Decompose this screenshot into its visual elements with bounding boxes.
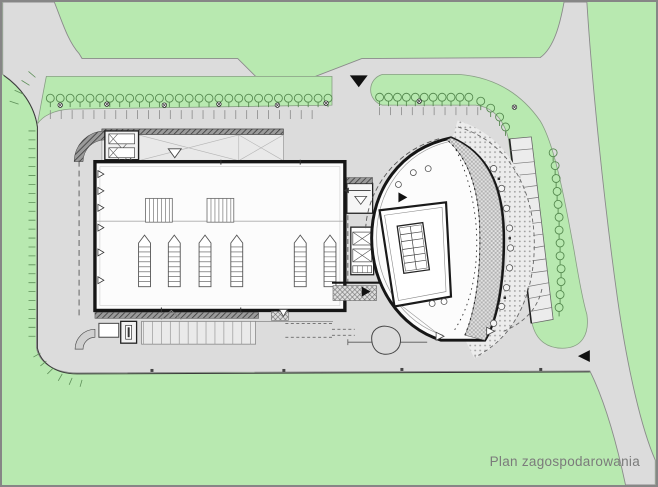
site-plan-drawing xyxy=(2,2,656,485)
plan-caption: Plan zagospodarowania xyxy=(490,454,640,469)
storage-racks xyxy=(139,235,336,287)
dock-bays xyxy=(142,321,256,344)
site-plan-frame: Plan zagospodarowania xyxy=(0,0,658,487)
main-warehouse-building xyxy=(79,160,345,316)
